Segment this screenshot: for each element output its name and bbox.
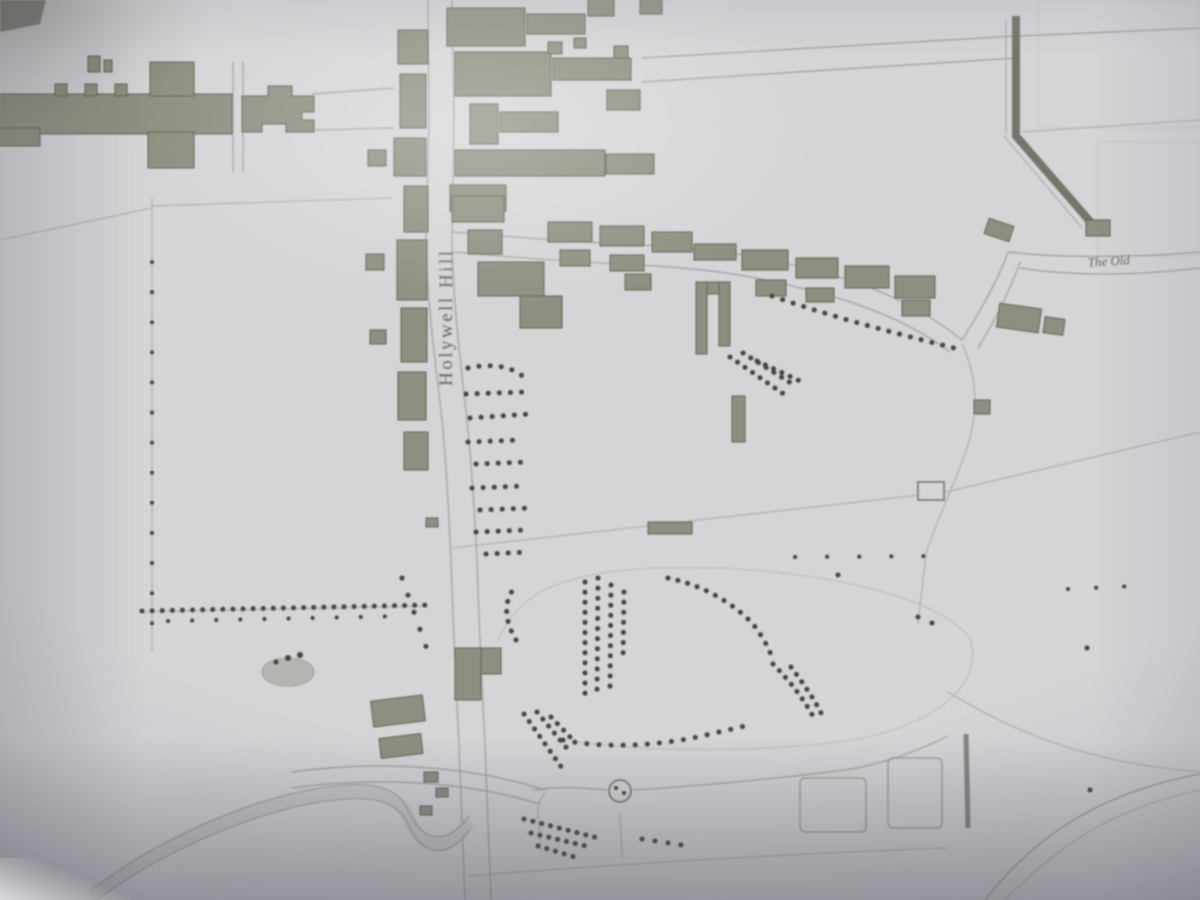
carriage-circle — [609, 780, 631, 802]
trees — [142, 262, 1136, 858]
buildings — [0, 0, 1110, 815]
holywell-hill-street — [426, 0, 465, 900]
high-street-block — [447, 0, 662, 211]
stream — [90, 785, 469, 900]
pond — [262, 658, 314, 686]
street-label: Holywell Hill — [436, 248, 457, 386]
street-west-frontage — [366, 30, 438, 527]
field-plots — [800, 734, 1093, 832]
abbey-church — [0, 56, 314, 168]
old-road-label: The Old — [1087, 252, 1131, 270]
map-drawing: Holywell Hill The Old — [0, 0, 1200, 900]
lane-buildings — [548, 222, 935, 442]
roads — [233, 0, 1200, 900]
hedgerow — [142, 605, 428, 611]
park-tree-belt — [507, 556, 1136, 768]
map-photograph: Holywell Hill The Old — [0, 0, 1200, 900]
